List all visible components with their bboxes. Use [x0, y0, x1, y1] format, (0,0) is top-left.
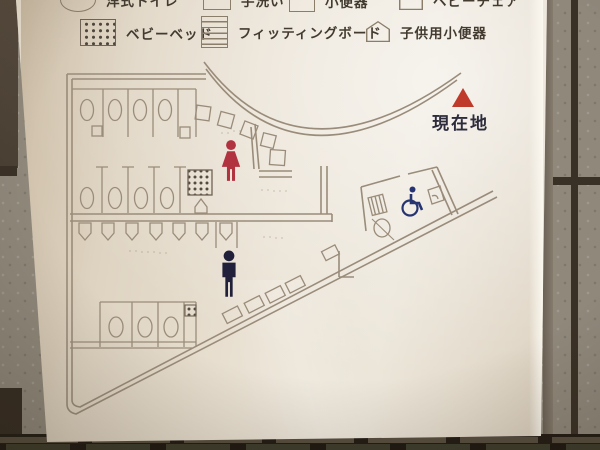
stall-bottom-wall: [70, 342, 196, 348]
toilet-oval: [159, 100, 172, 121]
baby-bed-dotted-small: [185, 305, 196, 316]
photo-of-restroom-map-sign: 洋式トイレ 手洗い 小便器 ベビーチェア ベビーベッド フィッティングボード 子…: [0, 0, 600, 450]
urinal: [196, 223, 208, 240]
toilet-oval: [81, 100, 94, 121]
toilet-oval: [164, 317, 178, 337]
toilet-oval: [81, 188, 94, 209]
sink: [269, 150, 285, 166]
tile-top-left: [0, 0, 18, 168]
wheelchair-pictogram: [403, 187, 423, 216]
mens-stall-row: [70, 302, 196, 348]
male-pictogram: [222, 251, 235, 297]
accessible-room: [361, 167, 458, 240]
room-left-wall: [361, 187, 366, 231]
toilet-oval: [135, 188, 148, 209]
floor-plan-map: [0, 0, 600, 450]
fixture-box: [92, 126, 102, 136]
female-pictogram: [222, 140, 240, 181]
baby-bed-dotted: [188, 170, 212, 195]
mens-urinal-row: [79, 222, 237, 248]
urinal: [150, 223, 162, 240]
wall-outer-inner: [72, 79, 493, 407]
room-right-wall: [432, 167, 458, 215]
wall-women-connector: [251, 124, 259, 169]
sink: [260, 133, 276, 149]
toilet-oval: [138, 317, 152, 337]
you-are-here-label: 現在地: [432, 109, 502, 134]
grout-right-horizontal: [552, 177, 600, 185]
urinal: [173, 223, 185, 240]
sink: [222, 306, 242, 324]
urinal: [102, 223, 114, 240]
urinal-partitions: [216, 222, 237, 248]
stall-dividers: [102, 167, 180, 213]
grout-right-vertical: [571, 0, 578, 450]
toilet-oval: [109, 188, 122, 209]
stall-dividers: [100, 302, 196, 347]
sign-panel: 洋式トイレ 手洗い 小便器 ベビーチェア ベビーベッド フィッティングボード 子…: [0, 0, 600, 450]
sink: [217, 111, 234, 128]
child-urinal-pentagon: [195, 199, 207, 213]
sink: [195, 105, 211, 121]
urinal: [79, 223, 91, 240]
wall-corridor: [70, 214, 332, 221]
fixture-box: [180, 127, 190, 138]
wall-hung-toilet: [428, 186, 444, 204]
toilet-oval: [134, 100, 147, 121]
fitting-board-striped: [368, 194, 387, 215]
sink: [244, 296, 264, 314]
you-are-here-triangle: [452, 88, 474, 107]
womens-stall-row-1: [72, 89, 196, 138]
toilet-oval: [109, 317, 123, 337]
stall-dividers: [103, 89, 196, 137]
womens-stall-row-2: [81, 167, 187, 213]
toilet-oval: [109, 100, 122, 121]
sink-corridor: [321, 245, 339, 261]
womens-sinks-curve: [195, 105, 285, 165]
grout-left: [0, 166, 17, 176]
room-top-wall: [361, 167, 437, 187]
urinal: [126, 223, 138, 240]
mens-sinks-diagonal: [222, 245, 339, 324]
wall-women-right: [259, 171, 292, 177]
wall-corridor-cap: [270, 214, 332, 222]
wall-curve: [204, 62, 461, 129]
urinal-partitioned: [220, 223, 232, 240]
wall-women-pillar: [321, 166, 327, 214]
tile-row-bottom-2: [0, 444, 600, 450]
toilet-oval: [161, 188, 174, 209]
